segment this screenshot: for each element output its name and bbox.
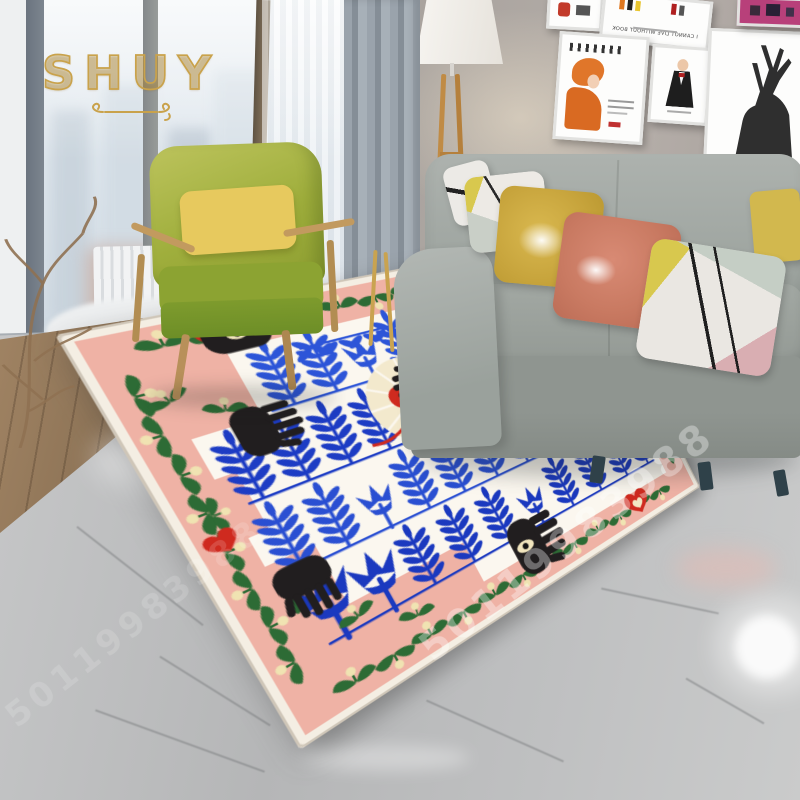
- poster-text-line: [667, 110, 691, 114]
- floor-lamp-shade: [415, 0, 503, 64]
- floor-reflection: [300, 745, 470, 771]
- poster-text-line: [608, 100, 634, 104]
- figure-face: [587, 74, 600, 89]
- gray-sofa: [403, 126, 800, 460]
- living-room-product-photo: I CANNOT LIVE WITHOUT BOOK: [0, 0, 800, 800]
- poster-bar: [671, 4, 677, 15]
- dry-branches: [0, 158, 100, 448]
- poster-bar: [619, 0, 625, 10]
- art-shape: [786, 8, 794, 17]
- poster-text-line: [607, 112, 627, 115]
- floor-lamp-stem: [450, 63, 454, 76]
- pillow-highlight: [574, 252, 618, 287]
- art-shape: [576, 5, 591, 16]
- armchair-leg: [281, 330, 296, 391]
- poster-bar: [635, 1, 641, 11]
- small-art-frame: [546, 0, 604, 31]
- armchair-shadow: [147, 386, 337, 408]
- armchair-arm-post: [327, 240, 339, 332]
- tiny-figures-row: [570, 43, 622, 55]
- green-armchair: [133, 138, 343, 404]
- art-shape: [558, 2, 571, 17]
- orange-dress: [564, 87, 603, 131]
- bow-tie: [679, 73, 685, 77]
- poster-bar: [679, 5, 685, 15]
- sofa-armrest: [392, 246, 502, 451]
- figure-head: [677, 59, 689, 72]
- brand-logo-text: SHUY: [42, 46, 220, 100]
- magenta-art-poster-frame: [736, 0, 800, 28]
- armchair-pillow: [179, 184, 297, 256]
- armchair-arm-post: [132, 254, 145, 342]
- rug-reflection: [676, 548, 776, 588]
- suit-figure-poster-frame: [647, 44, 712, 126]
- art-shape: [750, 5, 760, 15]
- armchair-seat-front: [160, 297, 323, 339]
- brand-logo: SHUY: [42, 46, 220, 128]
- geometric-pillow: [634, 237, 787, 378]
- lamp-reflection: [735, 615, 799, 679]
- poster-text-line: [608, 106, 634, 110]
- art-shape: [766, 4, 780, 16]
- poster-bar: [627, 0, 633, 10]
- logo-flourish-icon: [81, 100, 181, 124]
